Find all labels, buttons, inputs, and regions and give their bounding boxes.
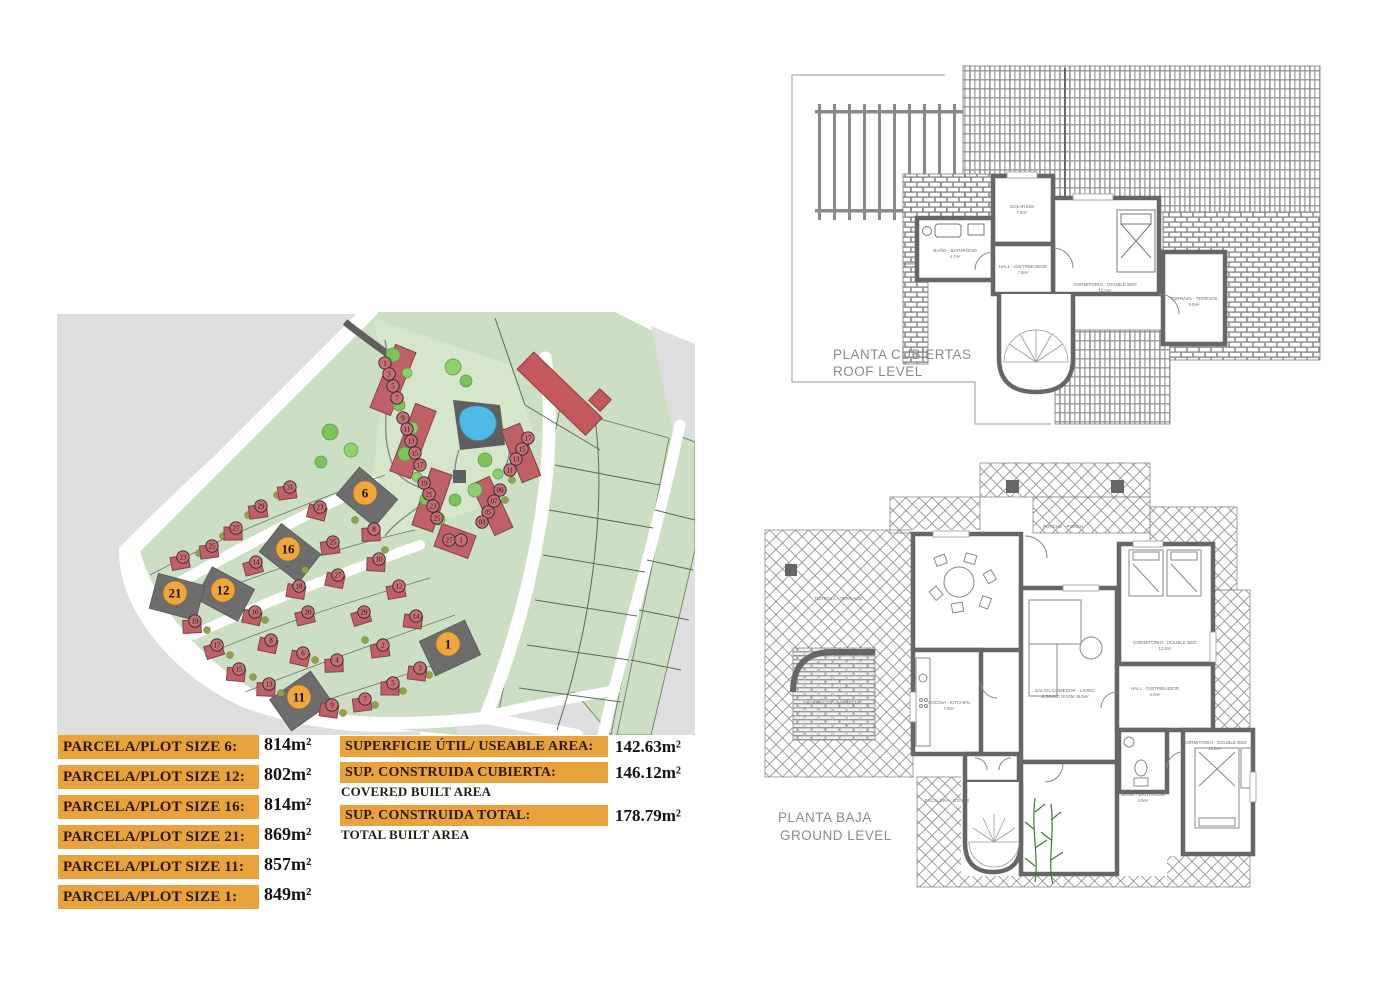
plot-number: 03 <box>479 519 487 527</box>
area-value: 178.79m² <box>615 806 681 826</box>
room-label: HALL - DISTRIBUIDOR <box>999 264 1048 269</box>
plot-number: 7 <box>395 395 399 403</box>
room-area-label: 7.8m² <box>1018 270 1029 275</box>
room-label: DORMITORIO - DOUBLE BED <box>1183 740 1247 745</box>
park-kiosk <box>453 470 466 483</box>
plot-size-label: PARCELA/PLOT SIZE 6: <box>58 735 259 759</box>
plot-size-label: PARCELA/PLOT SIZE 11: <box>58 855 259 879</box>
plot-size-value: 802m² <box>264 764 311 785</box>
ground-plan-title-en: GROUND LEVEL <box>780 828 892 843</box>
plot-number: 3 <box>387 371 391 379</box>
plot-number: 6 <box>301 650 305 658</box>
ground-level-plan: PORCHE - PORCHTERRAZA - TERRACEBARBACOA … <box>763 452 1363 937</box>
plot-number: 17 <box>214 642 222 650</box>
plot-number: 3 <box>418 665 422 673</box>
plot-number: 8 <box>372 526 376 534</box>
site-master-plan: 1357911131517192123252711715131109070503… <box>55 310 695 735</box>
plot-size-label: PARCELA/PLOT SIZE 16: <box>58 795 259 819</box>
room-label: TERRAZA - TERRACE <box>814 596 861 601</box>
room-label: BAÑO - BATHROOM <box>933 247 976 253</box>
room-area-label: & DINING ROOM 36.0m² <box>1042 694 1090 699</box>
room-label: TERRAZA - TERRACE <box>1170 296 1217 301</box>
plot-number: 8 <box>269 637 273 645</box>
plot-number: 14 <box>413 613 421 621</box>
plot-number: 29 <box>361 609 369 617</box>
plot-number: 21 <box>426 491 434 499</box>
plot-number: 9 <box>330 702 334 710</box>
highlighted-plot-number: 6 <box>362 486 369 501</box>
highlighted-plot-number: 12 <box>217 583 230 598</box>
plot-number: 25 <box>209 543 217 551</box>
area-label: SUP. CONSTRUIDA CUBIERTA: <box>340 762 608 783</box>
table-row: PARCELA/PLOT SIZE 11: 857m² <box>58 855 398 879</box>
room-label: SALON COMEDOR - LIVING <box>1035 688 1095 693</box>
area-sublabel: COVERED BUILT AREA <box>341 784 700 800</box>
plot-number: 23 <box>180 554 188 562</box>
room-label: ESCALERA - STAIRS <box>925 798 970 803</box>
table-row: SUP. CONSTRUIDA CUBIERTA: COVERED BUILT … <box>340 762 700 800</box>
area-value: 142.63m² <box>615 737 681 757</box>
plot-number: 13 <box>266 681 274 689</box>
room-label: DORMITORIO - DOUBLE BED <box>1133 640 1197 645</box>
room-area-label: 4.7m² <box>950 254 961 259</box>
room-label: COCINA - KITCHEN <box>928 700 970 705</box>
plot-number: 4 <box>335 657 339 665</box>
brochure-page: 1357911131517192123252711715131109070503… <box>0 0 1400 990</box>
plot-number: 27 <box>233 525 241 533</box>
table-row: SUP. CONSTRUIDA TOTAL: TOTAL BUILT AREA … <box>340 805 700 843</box>
plot-number: 12 <box>396 583 404 591</box>
highlighted-plot-number: 1 <box>445 637 452 652</box>
plot-number: 11 <box>507 467 514 475</box>
plot-number: 5 <box>391 680 395 688</box>
roof-level-plan: SOLARIUM7.5m²BAÑO - BATHROOM4.7m²HALL - … <box>785 62 1345 427</box>
room-label: PORCHE - PORCH <box>1043 524 1083 529</box>
highlighted-plot-number: 11 <box>293 690 305 705</box>
plot-number: 13 <box>513 456 521 464</box>
plot-number: 27 <box>335 572 343 580</box>
highlighted-plot-number: 21 <box>169 586 182 601</box>
plot-number: 14 <box>253 559 261 567</box>
roof-plan-title-es: PLANTA CUBIERTAS <box>833 347 972 362</box>
plot-number: 18 <box>296 583 304 591</box>
plot-number: 23 <box>430 503 438 511</box>
room-label: HALL - DISTRIBUIDOR <box>1131 686 1180 691</box>
plot-number: 29 <box>258 503 266 511</box>
plot-number: 19 <box>192 618 200 626</box>
plot-number: 15 <box>519 446 527 454</box>
plot-number: 20 <box>305 609 313 617</box>
room-label: DORMITORIO - DOUBLE BED <box>1073 282 1137 287</box>
table-row: SUPERFICIE ÚTIL/ USEABLE AREA: 142.63m² <box>340 736 700 757</box>
highlighted-plot-number: 16 <box>282 542 296 557</box>
room-area-label: 7.5m² <box>1017 210 1028 215</box>
area-label: SUPERFICIE ÚTIL/ USEABLE AREA: <box>340 736 608 757</box>
plot-size-value: 869m² <box>264 824 311 845</box>
plot-number: 17 <box>525 435 533 443</box>
plot-number: 1 <box>383 360 387 368</box>
room-area-label: 12.6m² <box>1208 746 1222 751</box>
plot-number: 7 <box>363 696 367 704</box>
plot-number: 10 <box>252 609 260 617</box>
ground-plan-title-es: PLANTA BAJA <box>778 810 872 825</box>
plot-number: 05 <box>485 509 493 517</box>
plot-size-value: 857m² <box>264 854 311 875</box>
plot-number: 9 <box>401 415 405 423</box>
plot-size-value: 814m² <box>264 794 311 815</box>
plot-size-value: 814m² <box>264 734 311 755</box>
plot-number: 10 <box>376 556 384 564</box>
room-area-label: 15.2m² <box>1098 288 1112 293</box>
built-area-table: SUPERFICIE ÚTIL/ USEABLE AREA: 142.63m² … <box>340 736 700 848</box>
pool <box>459 406 496 441</box>
plot-number: 25 <box>434 515 442 523</box>
plot-number: 09 <box>497 487 505 495</box>
plot-number: 17 <box>417 462 425 470</box>
plot-number: 23 <box>317 504 325 512</box>
room-label: BAÑO - BATHROOM <box>1121 791 1164 797</box>
room-area-label: 4.0m² <box>1150 692 1161 697</box>
plot-number: 31 <box>287 484 295 492</box>
plot-size-value: 849m² <box>264 884 311 905</box>
plot-number: 25 <box>330 539 338 547</box>
plot-size-label: PARCELA/PLOT SIZE 1: <box>58 885 259 909</box>
table-row: PARCELA/PLOT SIZE 1: 849m² <box>58 885 398 909</box>
room-area-label: 9.0m² <box>1189 302 1200 307</box>
plot-size-label: PARCELA/PLOT SIZE 12: <box>58 765 259 789</box>
plot-number: 2 <box>381 642 385 650</box>
area-value: 146.12m² <box>615 763 681 783</box>
area-label: SUP. CONSTRUIDA TOTAL: <box>340 805 608 826</box>
plot-number: 19 <box>421 480 429 488</box>
plot-number: 15 <box>412 450 420 458</box>
plot-number: 15 <box>236 666 244 674</box>
room-area-label: 4.5m² <box>1138 798 1149 803</box>
plot-number: 1 <box>459 537 463 545</box>
room-label: BARBACOA - BARBECUE <box>807 700 862 705</box>
room-area-label: 12.2m² <box>1158 646 1172 651</box>
plot-size-label: PARCELA/PLOT SIZE 21: <box>58 825 259 849</box>
room-label: SOLARIUM <box>1010 204 1034 209</box>
area-sublabel: TOTAL BUILT AREA <box>341 827 700 843</box>
plot-number: 13 <box>408 438 416 446</box>
plot-number: 07 <box>491 498 499 506</box>
plot-number: 5 <box>391 383 395 391</box>
plot-number: 27 <box>446 537 454 545</box>
plot-number: 11 <box>404 426 411 434</box>
roof-plan-title-en: ROOF LEVEL <box>833 364 923 379</box>
room-area-label: 7.5m² <box>944 706 955 711</box>
